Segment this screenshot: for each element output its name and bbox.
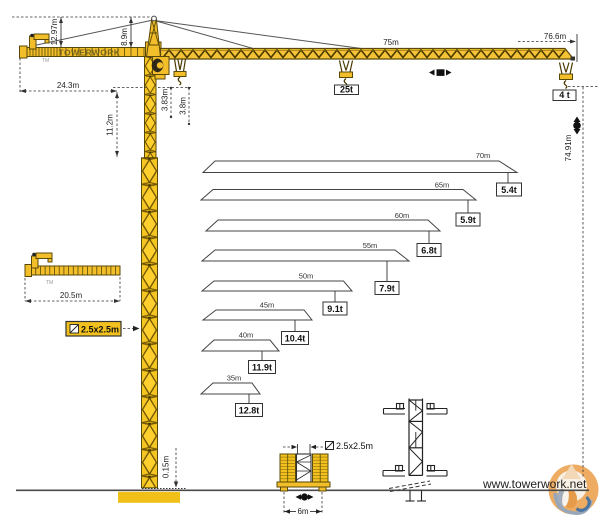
svg-text:12.97m: 12.97m <box>50 18 59 45</box>
svg-text:74.91m: 74.91m <box>564 134 573 161</box>
svg-text:0.15m: 0.15m <box>162 456 171 479</box>
svg-text:3.8m: 3.8m <box>179 97 188 115</box>
svg-text:TM: TM <box>46 280 53 286</box>
svg-text:11.9t: 11.9t <box>252 362 272 372</box>
svg-text:7.9t: 7.9t <box>379 283 395 293</box>
svg-text:55m: 55m <box>363 241 378 250</box>
svg-text:8.9m: 8.9m <box>120 28 129 46</box>
svg-text:TOWERWORK: TOWERWORK <box>59 48 121 58</box>
svg-text:5.4t: 5.4t <box>501 185 517 195</box>
svg-text:40m: 40m <box>239 331 254 340</box>
svg-text:65m: 65m <box>435 181 450 190</box>
svg-text:20.5m: 20.5m <box>60 291 83 300</box>
svg-text:50m: 50m <box>299 272 314 281</box>
svg-text:35m: 35m <box>227 374 242 383</box>
svg-text:4 t: 4 t <box>559 90 570 100</box>
svg-text:75m: 75m <box>383 38 399 47</box>
svg-text:24.3m: 24.3m <box>57 81 80 90</box>
svg-text:9.1t: 9.1t <box>327 304 343 314</box>
svg-text:11.2m: 11.2m <box>106 114 115 136</box>
svg-text:3.83m: 3.83m <box>161 89 170 112</box>
svg-text:6.8t: 6.8t <box>421 245 437 255</box>
svg-text:60m: 60m <box>395 211 410 220</box>
svg-text:25t: 25t <box>340 85 353 95</box>
svg-text:5.9t: 5.9t <box>460 215 476 225</box>
svg-text:12.8t: 12.8t <box>239 405 260 415</box>
svg-text:45m: 45m <box>260 301 275 310</box>
svg-text:2.5x2.5m: 2.5x2.5m <box>81 325 119 335</box>
svg-text:www.towerwork.net: www.towerwork.net <box>482 477 587 491</box>
svg-text:76.6m: 76.6m <box>544 32 567 41</box>
svg-text:10.4t: 10.4t <box>285 333 306 343</box>
svg-text:2.5x2.5m: 2.5x2.5m <box>336 441 373 451</box>
svg-text:6m: 6m <box>297 507 308 516</box>
svg-text:TM: TM <box>42 58 49 64</box>
svg-text:70m: 70m <box>476 151 491 160</box>
